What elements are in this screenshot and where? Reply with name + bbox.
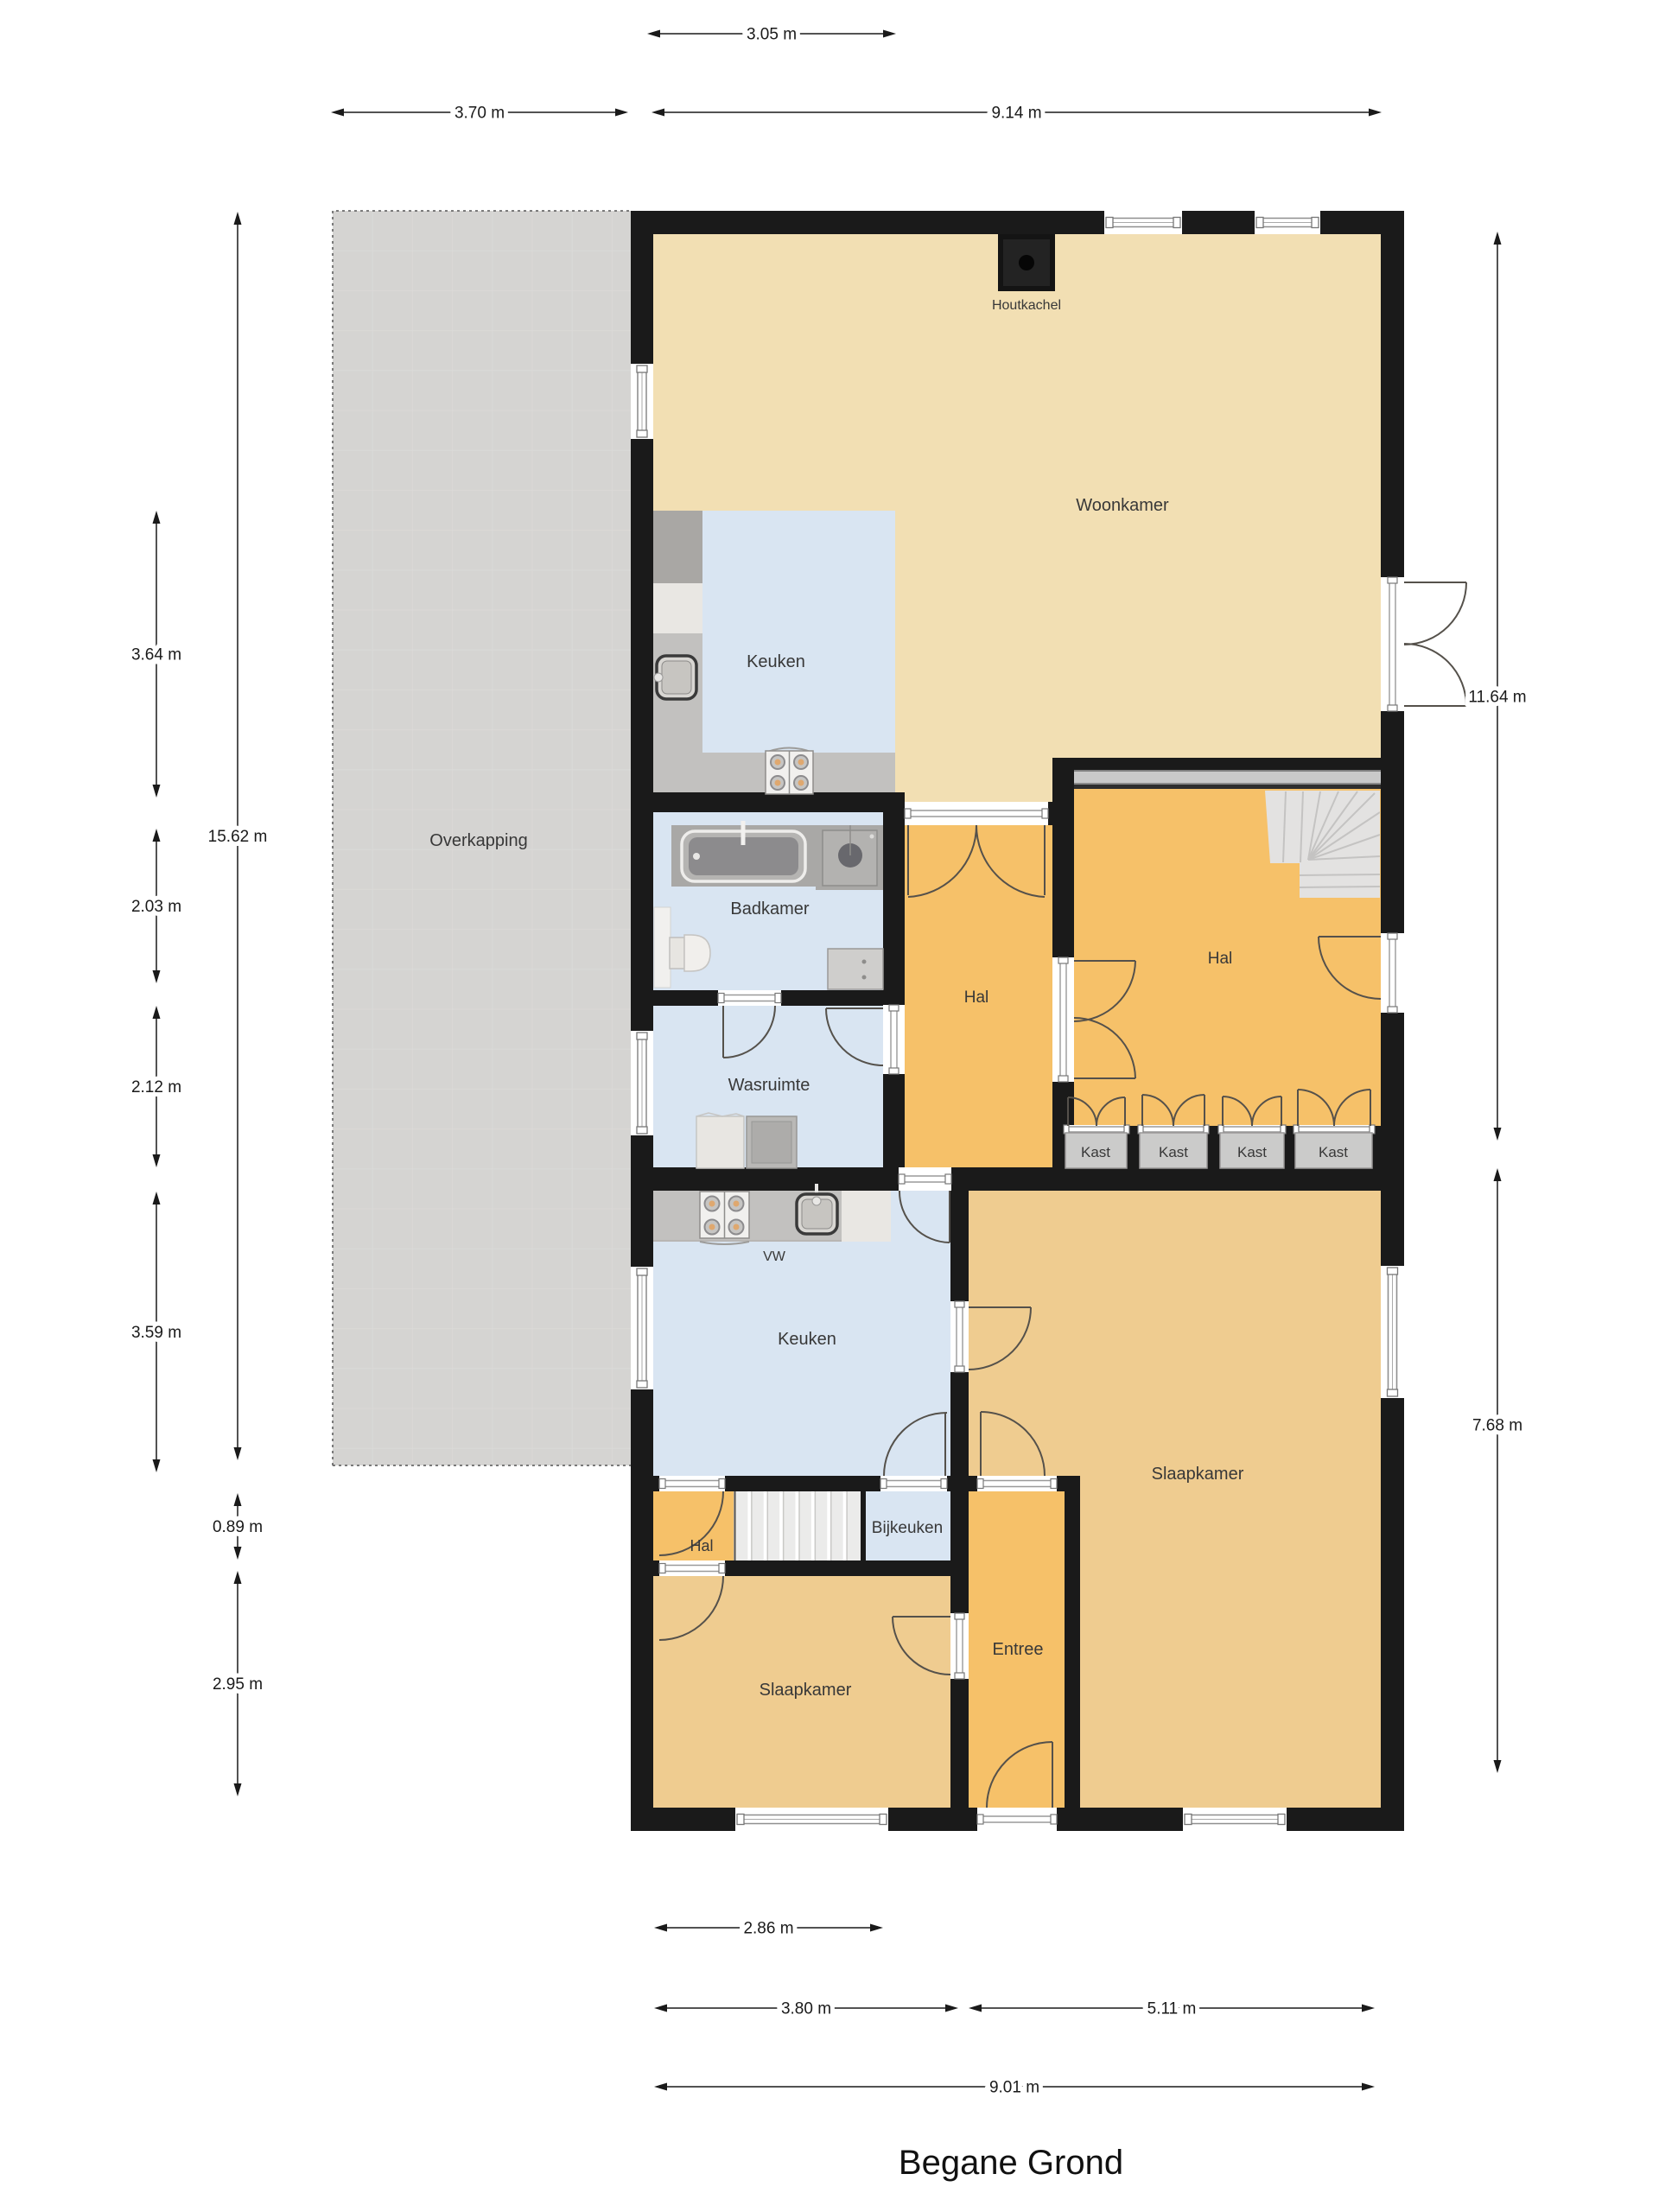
svg-text:Houtkachel: Houtkachel (992, 298, 1061, 313)
svg-text:Entree: Entree (993, 1640, 1044, 1659)
svg-text:Badkamer: Badkamer (730, 899, 809, 918)
svg-text:3.70 m: 3.70 m (454, 105, 505, 123)
svg-text:11.64 m: 11.64 m (1468, 689, 1526, 707)
svg-text:VW: VW (763, 1249, 786, 1264)
svg-text:3.64 m: 3.64 m (131, 646, 181, 664)
svg-text:9.14 m: 9.14 m (991, 105, 1041, 123)
svg-text:Hal: Hal (1208, 950, 1233, 968)
svg-text:9.01 m: 9.01 m (989, 2079, 1039, 2097)
svg-text:0.89 m: 0.89 m (213, 1518, 263, 1536)
svg-text:Hal: Hal (964, 988, 989, 1007)
svg-text:2.95 m: 2.95 m (213, 1675, 263, 1694)
svg-text:2.03 m: 2.03 m (131, 898, 181, 916)
svg-text:Wasruimte: Wasruimte (728, 1076, 810, 1095)
svg-text:3.59 m: 3.59 m (131, 1324, 181, 1342)
svg-text:Kast: Kast (1319, 1144, 1348, 1160)
svg-text:Hal: Hal (690, 1537, 713, 1554)
svg-text:Kast: Kast (1081, 1144, 1110, 1160)
svg-text:Slaapkamer: Slaapkamer (760, 1681, 852, 1700)
svg-text:Begane Grond: Begane Grond (899, 2144, 1123, 2182)
svg-text:2.12 m: 2.12 m (131, 1078, 181, 1096)
svg-text:Slaapkamer: Slaapkamer (1152, 1465, 1244, 1484)
svg-text:Woonkamer: Woonkamer (1076, 496, 1169, 515)
svg-text:Overkapping: Overkapping (429, 831, 527, 850)
svg-text:3.80 m: 3.80 m (781, 2000, 831, 2018)
svg-text:Kast: Kast (1237, 1144, 1267, 1160)
svg-text:2.86 m: 2.86 m (743, 1920, 793, 1938)
svg-text:Keuken: Keuken (747, 652, 805, 671)
svg-text:5.11 m: 5.11 m (1147, 2000, 1197, 2018)
svg-text:Bijkeuken: Bijkeuken (872, 1519, 943, 1537)
svg-text:Keuken: Keuken (778, 1330, 836, 1349)
svg-text:Kast: Kast (1159, 1144, 1188, 1160)
svg-text:3.05 m: 3.05 m (747, 26, 797, 44)
svg-text:15.62 m: 15.62 m (208, 828, 268, 846)
svg-text:7.68 m: 7.68 m (1472, 1417, 1522, 1435)
